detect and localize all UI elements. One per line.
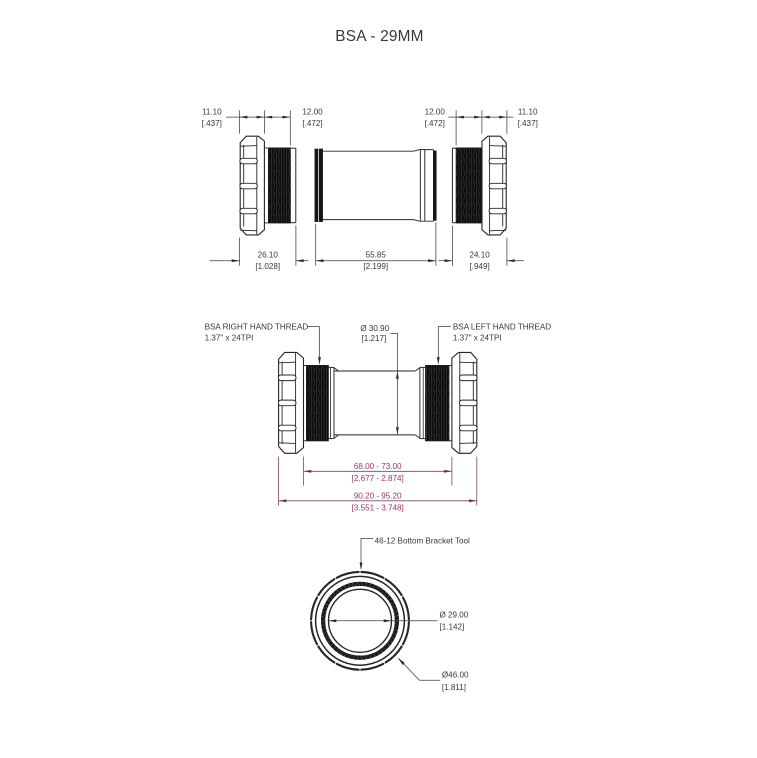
svg-text:[.437]: [.437] <box>202 119 222 128</box>
svg-text:BSA LEFT HAND THREAD: BSA LEFT HAND THREAD <box>453 323 551 332</box>
svg-text:[1.811]: [1.811] <box>442 683 466 692</box>
svg-text:1.37" x 24TPI: 1.37" x 24TPI <box>205 334 254 343</box>
svg-text:90.20 - 95.20: 90.20 - 95.20 <box>354 492 402 501</box>
svg-text:[.472]: [.472] <box>425 119 445 128</box>
svg-text:55.85: 55.85 <box>366 250 387 259</box>
svg-text:46-12 Bottom Bracket Tool: 46-12 Bottom Bracket Tool <box>375 537 470 546</box>
svg-text:[3.551 - 3.748]: [3.551 - 3.748] <box>352 503 404 512</box>
svg-text:Ø46.00: Ø46.00 <box>442 670 469 679</box>
svg-text:24.10: 24.10 <box>469 250 490 259</box>
svg-text:[.949]: [.949] <box>469 262 489 271</box>
svg-text:[1.142]: [1.142] <box>440 623 465 632</box>
svg-text:[2.677 - 2.874]: [2.677 - 2.874] <box>352 474 404 483</box>
svg-text:11.10: 11.10 <box>202 108 222 117</box>
svg-text:12.00: 12.00 <box>425 108 446 117</box>
svg-text:BSA RIGHT HAND THREAD: BSA RIGHT HAND THREAD <box>205 323 309 332</box>
svg-text:68.00 - 73.00: 68.00 - 73.00 <box>354 462 402 471</box>
svg-text:[.437]: [.437] <box>518 119 538 128</box>
svg-text:BSA - 29MM: BSA - 29MM <box>335 28 423 45</box>
svg-text:Ø 29.00: Ø 29.00 <box>440 611 469 620</box>
svg-text:1.37" x 24TPI: 1.37" x 24TPI <box>453 334 502 343</box>
svg-text:[2.199]: [2.199] <box>363 262 388 271</box>
svg-text:26.10: 26.10 <box>258 250 279 259</box>
svg-text:11.10: 11.10 <box>518 108 538 117</box>
svg-text:Ø 30.90: Ø 30.90 <box>360 324 389 333</box>
svg-text:[1.217]: [1.217] <box>362 334 387 343</box>
svg-text:[1.028]: [1.028] <box>255 262 280 271</box>
svg-text:[.472]: [.472] <box>302 119 322 128</box>
svg-text:12.00: 12.00 <box>302 108 323 117</box>
